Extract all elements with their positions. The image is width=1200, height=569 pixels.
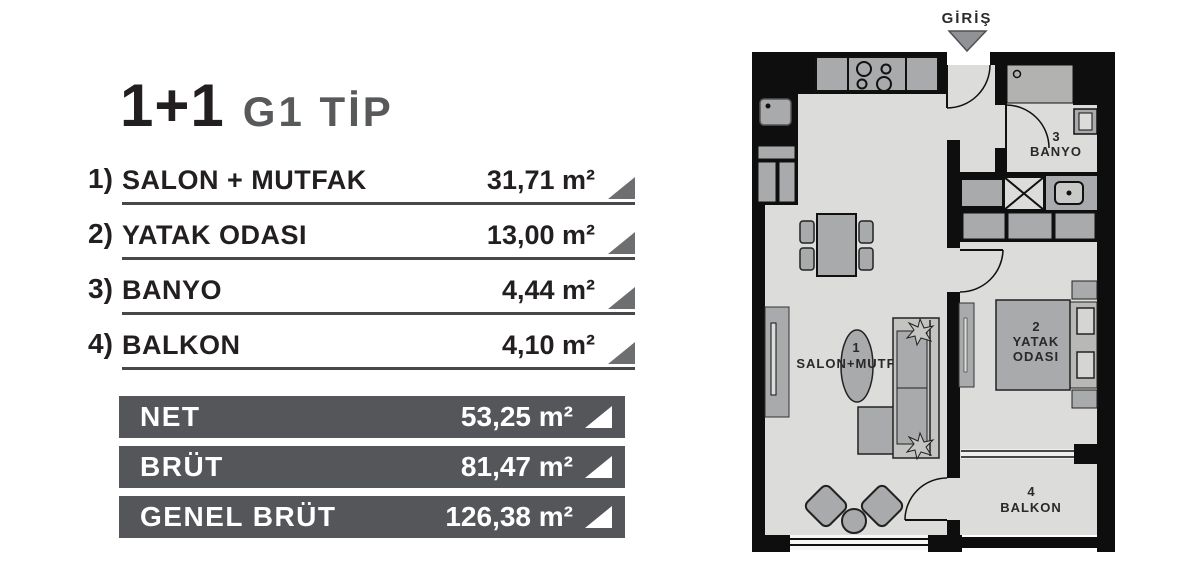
cabinet xyxy=(758,162,776,202)
salon-window xyxy=(790,535,928,550)
bedroom-label-line2: ODASI xyxy=(1013,349,1059,364)
room-area: 4,44 m² xyxy=(502,277,595,312)
tv-unit xyxy=(765,307,789,417)
cabinet xyxy=(962,180,1002,206)
room-number: 1) xyxy=(88,165,122,193)
room-number: 2) xyxy=(88,220,122,248)
room-area: 13,00 m² xyxy=(487,222,595,257)
room-label: BANYO xyxy=(122,277,222,312)
room-list: 1) SALON + MUTFAK 31,71 m² 2) YATAK ODAS… xyxy=(88,163,635,383)
nightstand xyxy=(1077,308,1094,334)
balcony-label: BALKON xyxy=(1000,500,1062,515)
area-triangle-icon xyxy=(608,232,635,254)
total-label: BRÜT xyxy=(140,453,461,481)
bedroom-label-line1: YATAK xyxy=(1013,334,1060,349)
total-label: GENEL BRÜT xyxy=(140,503,445,531)
tv-icon xyxy=(771,323,776,395)
bedroom-number: 2 xyxy=(1032,319,1039,334)
chair xyxy=(859,248,873,270)
kitchen-sink xyxy=(760,99,791,125)
room-area: 4,10 m² xyxy=(502,332,595,367)
balcony-number: 4 xyxy=(1027,484,1035,499)
dining-table xyxy=(817,214,856,276)
room-row: 1) SALON + MUTFAK 31,71 m² xyxy=(88,163,635,218)
area-triangle-icon xyxy=(585,506,612,528)
chair xyxy=(800,221,814,243)
apartment-type: 1+1 xyxy=(120,76,225,136)
area-triangle-icon xyxy=(585,406,612,428)
total-bar-net: NET 53,25 m² xyxy=(119,396,625,438)
total-area: 81,47 m² xyxy=(461,453,573,481)
utility-row xyxy=(960,172,1097,210)
bathroom-number: 3 xyxy=(1052,129,1059,144)
room-label: YATAK ODASI xyxy=(122,222,307,257)
total-bar-genel-brut: GENEL BRÜT 126,38 m² xyxy=(119,496,625,538)
total-bar-brut: BRÜT 81,47 m² xyxy=(119,446,625,488)
cabinet xyxy=(1072,390,1097,408)
totals-section: NET 53,25 m² BRÜT 81,47 m² GENEL BRÜT 12… xyxy=(119,396,625,546)
room-label: SALON + MUTFAK xyxy=(122,167,367,202)
area-triangle-icon xyxy=(608,342,635,364)
floorplan: GİRİŞ xyxy=(740,0,1200,569)
area-triangle-icon xyxy=(608,177,635,199)
page-title: 1+1 G1 TİP xyxy=(120,76,394,136)
room-row: 2) YATAK ODASI 13,00 m² xyxy=(88,218,635,273)
total-area: 53,25 m² xyxy=(461,403,573,431)
chair xyxy=(859,221,873,243)
room-row: 4) BALKON 4,10 m² xyxy=(88,328,635,383)
entrance-arrow-icon xyxy=(949,31,986,51)
round-table xyxy=(842,509,866,533)
chair xyxy=(800,248,814,270)
cabinet xyxy=(779,162,795,202)
cabinet xyxy=(758,146,795,159)
room-area: 31,71 m² xyxy=(487,167,595,202)
area-triangle-icon xyxy=(585,456,612,478)
coffee-table xyxy=(858,407,894,454)
entrance-label: GİRİŞ xyxy=(942,10,993,27)
wardrobe xyxy=(960,210,1097,242)
total-area: 126,38 m² xyxy=(445,503,573,531)
area-triangle-icon xyxy=(608,287,635,309)
cabinet xyxy=(1072,281,1097,299)
apartment-variant: G1 TİP xyxy=(243,91,394,133)
total-label: NET xyxy=(140,403,461,431)
salon-number: 1 xyxy=(852,340,859,355)
room-number: 4) xyxy=(88,330,122,358)
room-row: 3) BANYO 4,44 m² xyxy=(88,273,635,328)
bathroom-label: BANYO xyxy=(1030,144,1082,159)
nightstand xyxy=(1077,352,1094,378)
room-number: 3) xyxy=(88,275,122,303)
room-label: BALKON xyxy=(122,332,241,367)
